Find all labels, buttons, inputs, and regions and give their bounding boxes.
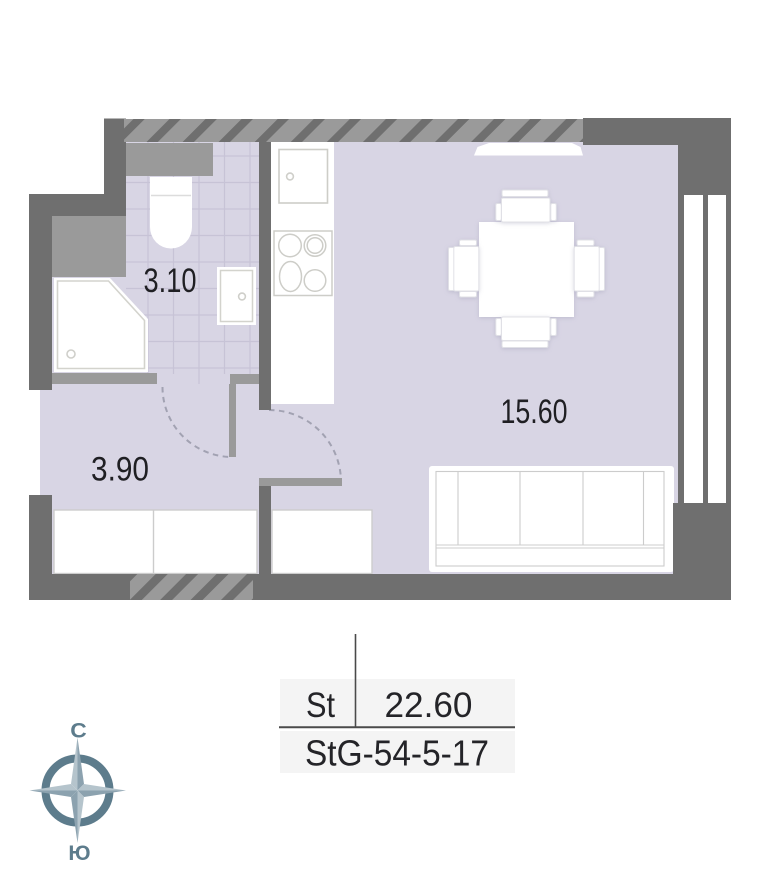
svg-text:22.60: 22.60 <box>385 686 473 725</box>
svg-text:Ю: Ю <box>68 841 90 865</box>
svg-text:15.60: 15.60 <box>501 393 568 431</box>
svg-text:St: St <box>306 686 335 725</box>
svg-text:StG-54-5-17: StG-54-5-17 <box>305 733 489 774</box>
svg-text:3.10: 3.10 <box>144 262 197 300</box>
svg-text:С: С <box>70 719 87 743</box>
svg-text:3.90: 3.90 <box>91 451 149 489</box>
